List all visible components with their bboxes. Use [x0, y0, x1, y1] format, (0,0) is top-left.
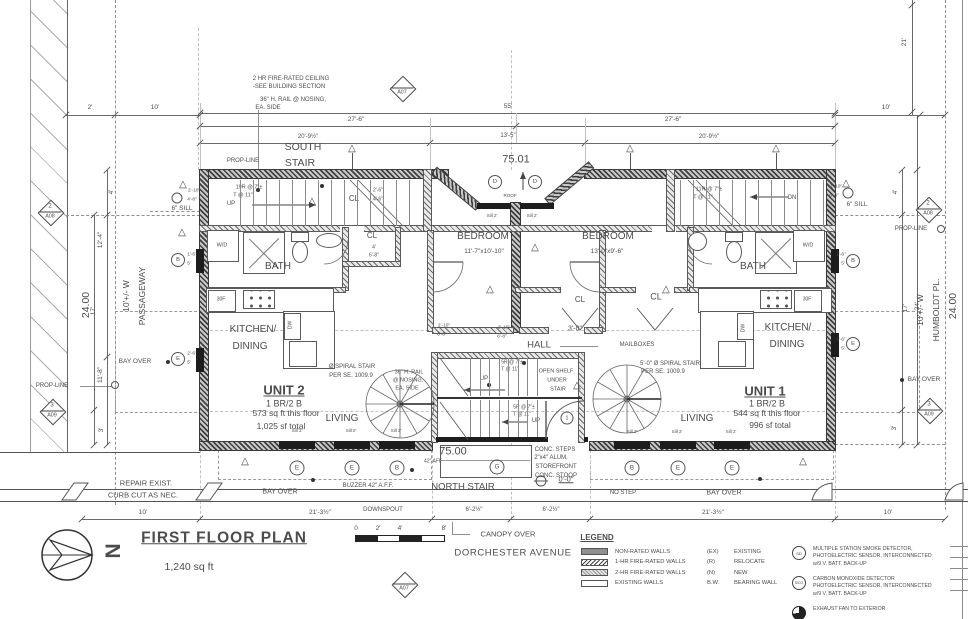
plan-label: DW	[742, 324, 747, 332]
stair-wall	[424, 170, 431, 231]
plan-label: 6'-8"	[437, 334, 447, 339]
plan-label: DINING	[770, 340, 805, 350]
window-type-marker: D	[488, 175, 502, 189]
legend-swatch-existing	[581, 580, 608, 587]
north-arrow-icon	[40, 528, 94, 582]
bath-wall	[343, 228, 348, 290]
prop-line-right	[945, 0, 946, 510]
detector-note-text: EXHAUST FAN TO EXTERIOR	[813, 606, 885, 619]
closet-wall	[343, 262, 400, 266]
ext-line	[590, 450, 591, 519]
window-type-marker: E	[846, 337, 860, 351]
plan-label: UP	[227, 201, 235, 207]
party-wall	[512, 230, 520, 332]
toilet-bowl-icon	[726, 241, 742, 263]
plan-label: BEDROOM	[582, 232, 634, 242]
prop-line-left	[115, 0, 116, 505]
plan-label: 1'-6"	[836, 254, 846, 259]
legend-item: NON-RATED WALLS(EX)EXISTING	[581, 548, 761, 555]
revision-triangle-icon: △	[573, 381, 581, 391]
bedroom-wall	[600, 231, 605, 331]
plan-label: 8'	[442, 526, 447, 533]
range-icon	[243, 290, 275, 309]
window-type-marker: E	[345, 461, 360, 476]
plan-label: Sill 2'	[527, 214, 538, 219]
leader-dot	[320, 184, 324, 188]
plan-label: Sill 2'	[672, 430, 683, 435]
plan-label: LIVING	[326, 414, 359, 424]
revision-triangle-icon: △	[662, 285, 670, 295]
window-type-marker: E	[725, 461, 740, 476]
plan-label: 4'	[398, 526, 403, 533]
plan-label: CL	[367, 232, 377, 240]
plan-label: 12'-4"	[98, 232, 105, 249]
hall-wall	[585, 328, 602, 333]
stair-tread	[470, 358, 471, 396]
plan-label: KITCHEN/	[230, 325, 277, 335]
window	[831, 333, 839, 357]
plan-label: PER SE. 1009.9	[329, 373, 373, 379]
window-type-marker: B	[390, 461, 405, 476]
stair-tread	[537, 358, 538, 396]
ext-line	[200, 450, 201, 519]
plan-label: 11'-7"x10'-10"	[464, 249, 504, 256]
sink-icon	[688, 232, 707, 251]
revision-triangle-icon: △	[486, 285, 494, 295]
legend-swatch-solid	[581, 548, 608, 555]
detector-note-text: MULTIPLE STATION SMOKE DETECTOR,PHOTOELE…	[813, 546, 932, 568]
revision-triangle-icon: △	[178, 228, 186, 238]
revision-triangle-icon: △	[241, 457, 249, 467]
dim-line	[200, 126, 835, 127]
stair-tread	[527, 358, 528, 396]
window	[614, 441, 650, 449]
stair-wall	[667, 170, 674, 231]
plan-label: STAIR	[285, 158, 315, 169]
plan-label: 24.00	[948, 293, 959, 319]
plan-label: HALL	[527, 340, 551, 350]
closet-wall	[516, 288, 560, 292]
plan-label: Sill 2'	[391, 429, 402, 434]
leader-dot	[166, 360, 170, 364]
plan-label: T @ 11"	[693, 195, 713, 201]
mailboxes-leader	[560, 346, 598, 347]
plan-label: REPAIR EXIST.	[120, 479, 172, 487]
plan-label: 2'-6"	[836, 339, 846, 344]
storefront	[436, 437, 548, 442]
window-type-marker: 1	[561, 412, 574, 425]
window	[379, 441, 415, 449]
plan-label: CURB CUT AS NEC.	[108, 491, 178, 499]
plan-label: Sill 2'	[346, 429, 357, 434]
plan-label: Sill 2'	[627, 430, 638, 435]
plan-label: 36" H. RAIL @ NOSING,	[260, 97, 326, 103]
kitchen-sink-icon	[718, 341, 746, 367]
revision-triangle-icon: △	[179, 180, 187, 190]
section-marker: 2A08	[917, 198, 940, 221]
sidewalk-line	[0, 452, 200, 453]
plan-label: 996 sf total	[749, 421, 791, 430]
plan-label: BAY OVER	[706, 490, 741, 497]
plan-label: 6'-4"	[829, 195, 839, 200]
plan-label: UNIT 2	[263, 384, 304, 397]
plan-label: Sill 2'	[726, 430, 737, 435]
leader-dot	[900, 378, 904, 382]
stair-tread	[537, 400, 538, 437]
toilet-bowl-icon	[292, 241, 308, 263]
plan-label: 6'-8"	[369, 254, 379, 259]
section-marker: 3A09	[41, 400, 64, 423]
plan-label: W/D	[803, 243, 814, 249]
range-icon	[760, 290, 792, 309]
dim-tick	[898, 441, 905, 448]
plan-label: 0'-0"	[559, 475, 574, 483]
plan-title: FIRST FLOOR PLAN	[141, 530, 307, 546]
stair-tread	[396, 180, 397, 226]
stair-tread	[706, 180, 707, 226]
stair-tread	[518, 358, 519, 396]
stair-tread	[797, 180, 798, 226]
window	[334, 441, 370, 449]
plan-label: 5'	[841, 263, 845, 268]
plan-label: 10'	[151, 105, 159, 112]
sheet-tick	[950, 590, 968, 591]
plan-label: T @ 11"	[513, 413, 531, 418]
legend-item-label: 1-HR FIRE-RATED WALLS	[615, 559, 707, 565]
plan-label: 10'+/- W	[916, 294, 925, 326]
exterior-wall-slant	[546, 163, 593, 204]
dim-tick	[103, 441, 110, 448]
sheet-tick	[950, 546, 968, 547]
legend-item: 2-HR FIRE-RATED WALLS(N)NEW	[581, 569, 748, 576]
stair-tread	[693, 180, 694, 226]
plan-label: Sill 2'	[292, 429, 303, 434]
exhaust-fan-icon	[792, 606, 806, 619]
plan-label: UP	[480, 376, 488, 382]
plan-label: 2'	[88, 105, 93, 112]
stair-tread	[253, 180, 254, 226]
plan-label: 4'	[893, 190, 900, 195]
stair-tread	[292, 180, 293, 226]
window	[520, 203, 554, 209]
street-line	[0, 501, 968, 502]
plan-label: 1'-6"	[187, 254, 197, 259]
plan-label: 2'-10"	[188, 190, 200, 195]
legend-swatch-hatch1	[581, 559, 608, 566]
dim-tick	[913, 441, 920, 448]
plan-label: DW	[289, 321, 294, 329]
bay-over-outline	[835, 311, 920, 413]
revision-triangle-icon: △	[842, 179, 850, 189]
plan-label: 75.01	[502, 155, 530, 166]
revision-triangle-icon: △	[799, 457, 807, 467]
legend-item: EXISTING WALLSB.W.BEARING WALL	[581, 580, 777, 587]
plan-label: DINING	[233, 342, 268, 352]
detector-note: EXHAUST FAN TO EXTERIOR	[792, 606, 885, 619]
stair-tread	[784, 180, 785, 226]
detector-symbol-icon: S/CO	[792, 576, 806, 590]
plan-label: 3'	[99, 428, 106, 433]
stair-tread	[508, 400, 509, 437]
legend-abbrev-label: RELOCATE	[734, 559, 765, 565]
plan-label: 75.00	[439, 447, 467, 458]
plan-label: 42" AFF	[424, 460, 442, 465]
plan-label: 27'-6"	[348, 117, 365, 124]
stair-tread	[370, 180, 371, 226]
window	[477, 203, 511, 209]
stair-tread	[240, 180, 241, 226]
plan-label: 2'-10"	[498, 327, 510, 332]
plan-label: 30F	[217, 298, 226, 303]
plan-label: N	[102, 543, 123, 558]
plan-label: 17'	[903, 304, 910, 312]
canopy-leader	[452, 522, 453, 534]
window-type-marker: E	[171, 352, 185, 366]
ext-line	[585, 118, 586, 170]
stair-tread	[409, 180, 410, 226]
plan-label: CL	[575, 296, 585, 304]
plan-label: 0	[354, 526, 358, 533]
flag-pole	[776, 153, 777, 169]
plan-label: BAY OVER	[908, 377, 941, 384]
canopy-leader	[452, 534, 470, 535]
plan-label: 573 sq ft this floor	[252, 409, 319, 418]
plan-label: 10'+/- W	[122, 280, 131, 312]
exterior-wall	[585, 170, 835, 178]
corridor-wall	[200, 226, 835, 231]
plan-label: BATH	[740, 262, 766, 272]
guide-line	[198, 28, 199, 170]
dim-line	[917, 115, 918, 445]
legend-item-label: NON-RATED WALLS	[615, 549, 707, 555]
kitchen-sink-icon	[289, 341, 317, 367]
dim-line	[107, 170, 108, 445]
plan-label: 21'-3½"	[309, 510, 331, 517]
dim-line	[66, 115, 200, 116]
plan-label: 55'	[504, 104, 512, 111]
plan-label: BATH	[265, 262, 291, 272]
closet-wall	[600, 288, 635, 292]
stair-tread	[318, 180, 319, 226]
plan-label: CANOPY OVER	[481, 530, 536, 538]
legend-abbrev-label: EXISTING	[734, 549, 761, 555]
plan-label: BAY OVER	[119, 359, 152, 366]
plan-label: PASSAGEWAY	[138, 267, 147, 325]
plan-label: OPEN SHELF	[539, 369, 574, 375]
stair-tread	[810, 180, 811, 226]
dim-tick	[941, 515, 948, 522]
closet-wall	[396, 228, 400, 264]
stair-tread	[758, 180, 759, 226]
plan-label: 2'-10"	[830, 186, 842, 191]
plan-label: BUZZER 42" A.F.F.	[343, 483, 394, 489]
sheet-tick	[950, 557, 968, 558]
plan-label: PROP-LINE	[227, 158, 259, 164]
plan-label: W/D	[217, 243, 228, 249]
plan-label: PROP-LINE	[895, 226, 927, 232]
stair-tread	[823, 180, 824, 226]
plan-label: CL	[650, 293, 662, 302]
stair-tread	[470, 400, 471, 437]
window-type-marker: B	[625, 461, 640, 476]
plan-label: 5R @ 7"±	[513, 406, 535, 411]
legend-abbrev-key: (N)	[707, 570, 734, 576]
stair-divider	[437, 397, 582, 399]
storefront-jamb	[584, 437, 588, 442]
window-type-marker: E	[290, 461, 305, 476]
plan-label: T @ 11"	[233, 193, 253, 199]
leader-dot	[758, 477, 762, 481]
plan-label: EA. SIDE	[255, 105, 280, 111]
stair-tread	[499, 358, 500, 396]
plan-label: NO STEP	[610, 490, 636, 496]
detector-symbol-icon: SD	[792, 546, 806, 560]
window	[714, 441, 750, 449]
plan-label: 5R @ 7"±	[501, 361, 523, 366]
legend-abbrev-label: NEW	[734, 570, 748, 576]
dim-line	[912, 0, 913, 115]
floor-plan-drawing: FIRST FLOOR PLAN 1,240 sq ft DORCHESTER …	[0, 0, 968, 619]
prop-line-h	[835, 444, 945, 445]
plan-label: 2'-6"	[373, 189, 383, 194]
plan-label: 4'	[109, 190, 116, 195]
legend-abbrev-key: (EX)	[707, 549, 734, 555]
plan-label: 21'-3½"	[702, 510, 724, 517]
prop-line-h	[66, 215, 200, 216]
stair-tread	[279, 180, 280, 226]
plan-label: DOWNSPOUT	[363, 507, 403, 513]
street-name: DORCHESTER AVENUE	[454, 548, 571, 558]
plan-label: PER SE. 1009.9	[641, 369, 685, 375]
marker-circle	[843, 188, 854, 199]
plan-label: STAIR	[550, 387, 566, 393]
bedroom-wall	[428, 231, 433, 331]
legend-heading: LEGEND	[580, 534, 613, 542]
plan-label: 4'-8"	[187, 199, 197, 204]
ext-line	[430, 118, 431, 170]
dim-line	[835, 115, 945, 116]
stair-tread	[680, 180, 681, 226]
plan-label: MAILBOXES	[620, 342, 655, 348]
legend-item-label: 2-HR FIRE-RATED WALLS	[615, 570, 707, 576]
sheet-tick	[950, 579, 968, 580]
window-type-marker: B	[171, 253, 185, 267]
marker-circle	[172, 193, 183, 204]
stair-tread	[489, 358, 490, 396]
window-type-marker: G	[490, 460, 505, 475]
plan-label: 27'-6"	[665, 117, 682, 124]
stair-tread	[344, 180, 345, 226]
plan-label: 5'-0" Ø SPIRAL STAIR	[640, 361, 700, 367]
revision-triangle-icon: △	[531, 243, 539, 253]
stair-tread	[771, 180, 772, 226]
plan-label: UNIT 1	[744, 385, 785, 398]
plan-label: 10'	[882, 105, 890, 112]
plan-label: 13'-5"	[500, 133, 515, 139]
stair-tread	[745, 180, 746, 226]
window-type-marker: E	[671, 461, 686, 476]
plan-label: 6'-8"	[497, 336, 507, 341]
plan-label: HUMBOLDT PL.	[932, 279, 941, 342]
plan-label: Sill 2'	[487, 214, 498, 219]
plan-label: BEDROOM	[457, 232, 509, 242]
stair-tread	[489, 400, 490, 437]
plan-label: LIVING	[681, 414, 714, 424]
leader-dot	[410, 468, 414, 472]
sheet-border	[962, 0, 963, 619]
plan-label: 24.00	[81, 292, 92, 318]
plan-label: 6" SILL	[846, 202, 867, 209]
plan-label: SOUTH	[285, 142, 322, 153]
plan-label: CONC. STEPS	[535, 447, 576, 453]
plan-label: 20'-9½"	[298, 134, 318, 140]
section-marker: 2A08	[39, 201, 62, 224]
stair-tread	[732, 180, 733, 226]
plan-label: BAY OVER	[262, 489, 297, 496]
plan-label: @ NOSING,	[393, 378, 423, 384]
plan-label: 6'-2½"	[543, 507, 560, 513]
plan-label: 2'-10"	[438, 325, 450, 330]
flag-pole	[630, 153, 631, 169]
stair-tread	[266, 180, 267, 226]
sink-icon	[316, 233, 342, 248]
stair-tread	[305, 180, 306, 226]
plan-label: 30F	[803, 298, 812, 303]
plan-label: 20'-9½"	[699, 134, 719, 140]
detector-note: S/COCARBON MONOXIDE DETECTORPHOTOELECTRI…	[792, 576, 932, 598]
plan-label: 4'-6"	[373, 198, 383, 203]
detector-note-text: CARBON MONOXIDE DETECTORPHOTOELECTRIC SE…	[813, 576, 932, 598]
detector-note: SDMULTIPLE STATION SMOKE DETECTOR,PHOTOE…	[792, 546, 932, 568]
window	[660, 441, 696, 449]
stair-tread	[331, 180, 332, 226]
plan-label: -SEE BUILDING SECTION	[253, 84, 325, 90]
section-marker: A07	[391, 77, 414, 100]
plan-label: 3'-0"	[568, 326, 582, 333]
hall-wall	[520, 328, 548, 333]
dim-tick	[90, 441, 97, 448]
plan-label: 4'	[372, 246, 376, 251]
plan-label: EA. SIDE	[395, 386, 418, 392]
marker-circle	[111, 381, 119, 389]
leader-dot	[256, 188, 260, 192]
legend-item-label: EXISTING WALLS	[615, 580, 707, 586]
ext-line	[516, 113, 517, 143]
revision-triangle-icon: △	[308, 197, 316, 207]
stair-tread	[499, 400, 500, 437]
plan-label: 21'	[902, 38, 909, 46]
plan-label: DN	[788, 195, 797, 201]
plan-area: 1,240 sq ft	[164, 562, 213, 573]
plan-label: KITCHEN/	[765, 323, 812, 333]
plan-label: 2'-6"	[187, 353, 197, 358]
window-type-marker: B	[846, 254, 860, 268]
exterior-wall	[200, 170, 448, 178]
plan-label: 2"x4" ALUM.	[534, 455, 568, 461]
plan-label: 6'-2½"	[466, 507, 483, 513]
stair-tread	[719, 180, 720, 226]
plan-label: 5'	[187, 362, 191, 367]
stair-tread	[508, 358, 509, 396]
plan-label: 5'	[841, 348, 845, 353]
window-type-marker: D	[528, 175, 542, 189]
plan-label: 2'	[376, 526, 381, 533]
legend-swatch-hatch2	[581, 569, 608, 576]
flag-pole	[352, 153, 353, 169]
ext-line	[835, 450, 836, 519]
legend-abbrev-key: (R)	[707, 559, 734, 565]
exterior-wall-slant	[433, 168, 480, 209]
